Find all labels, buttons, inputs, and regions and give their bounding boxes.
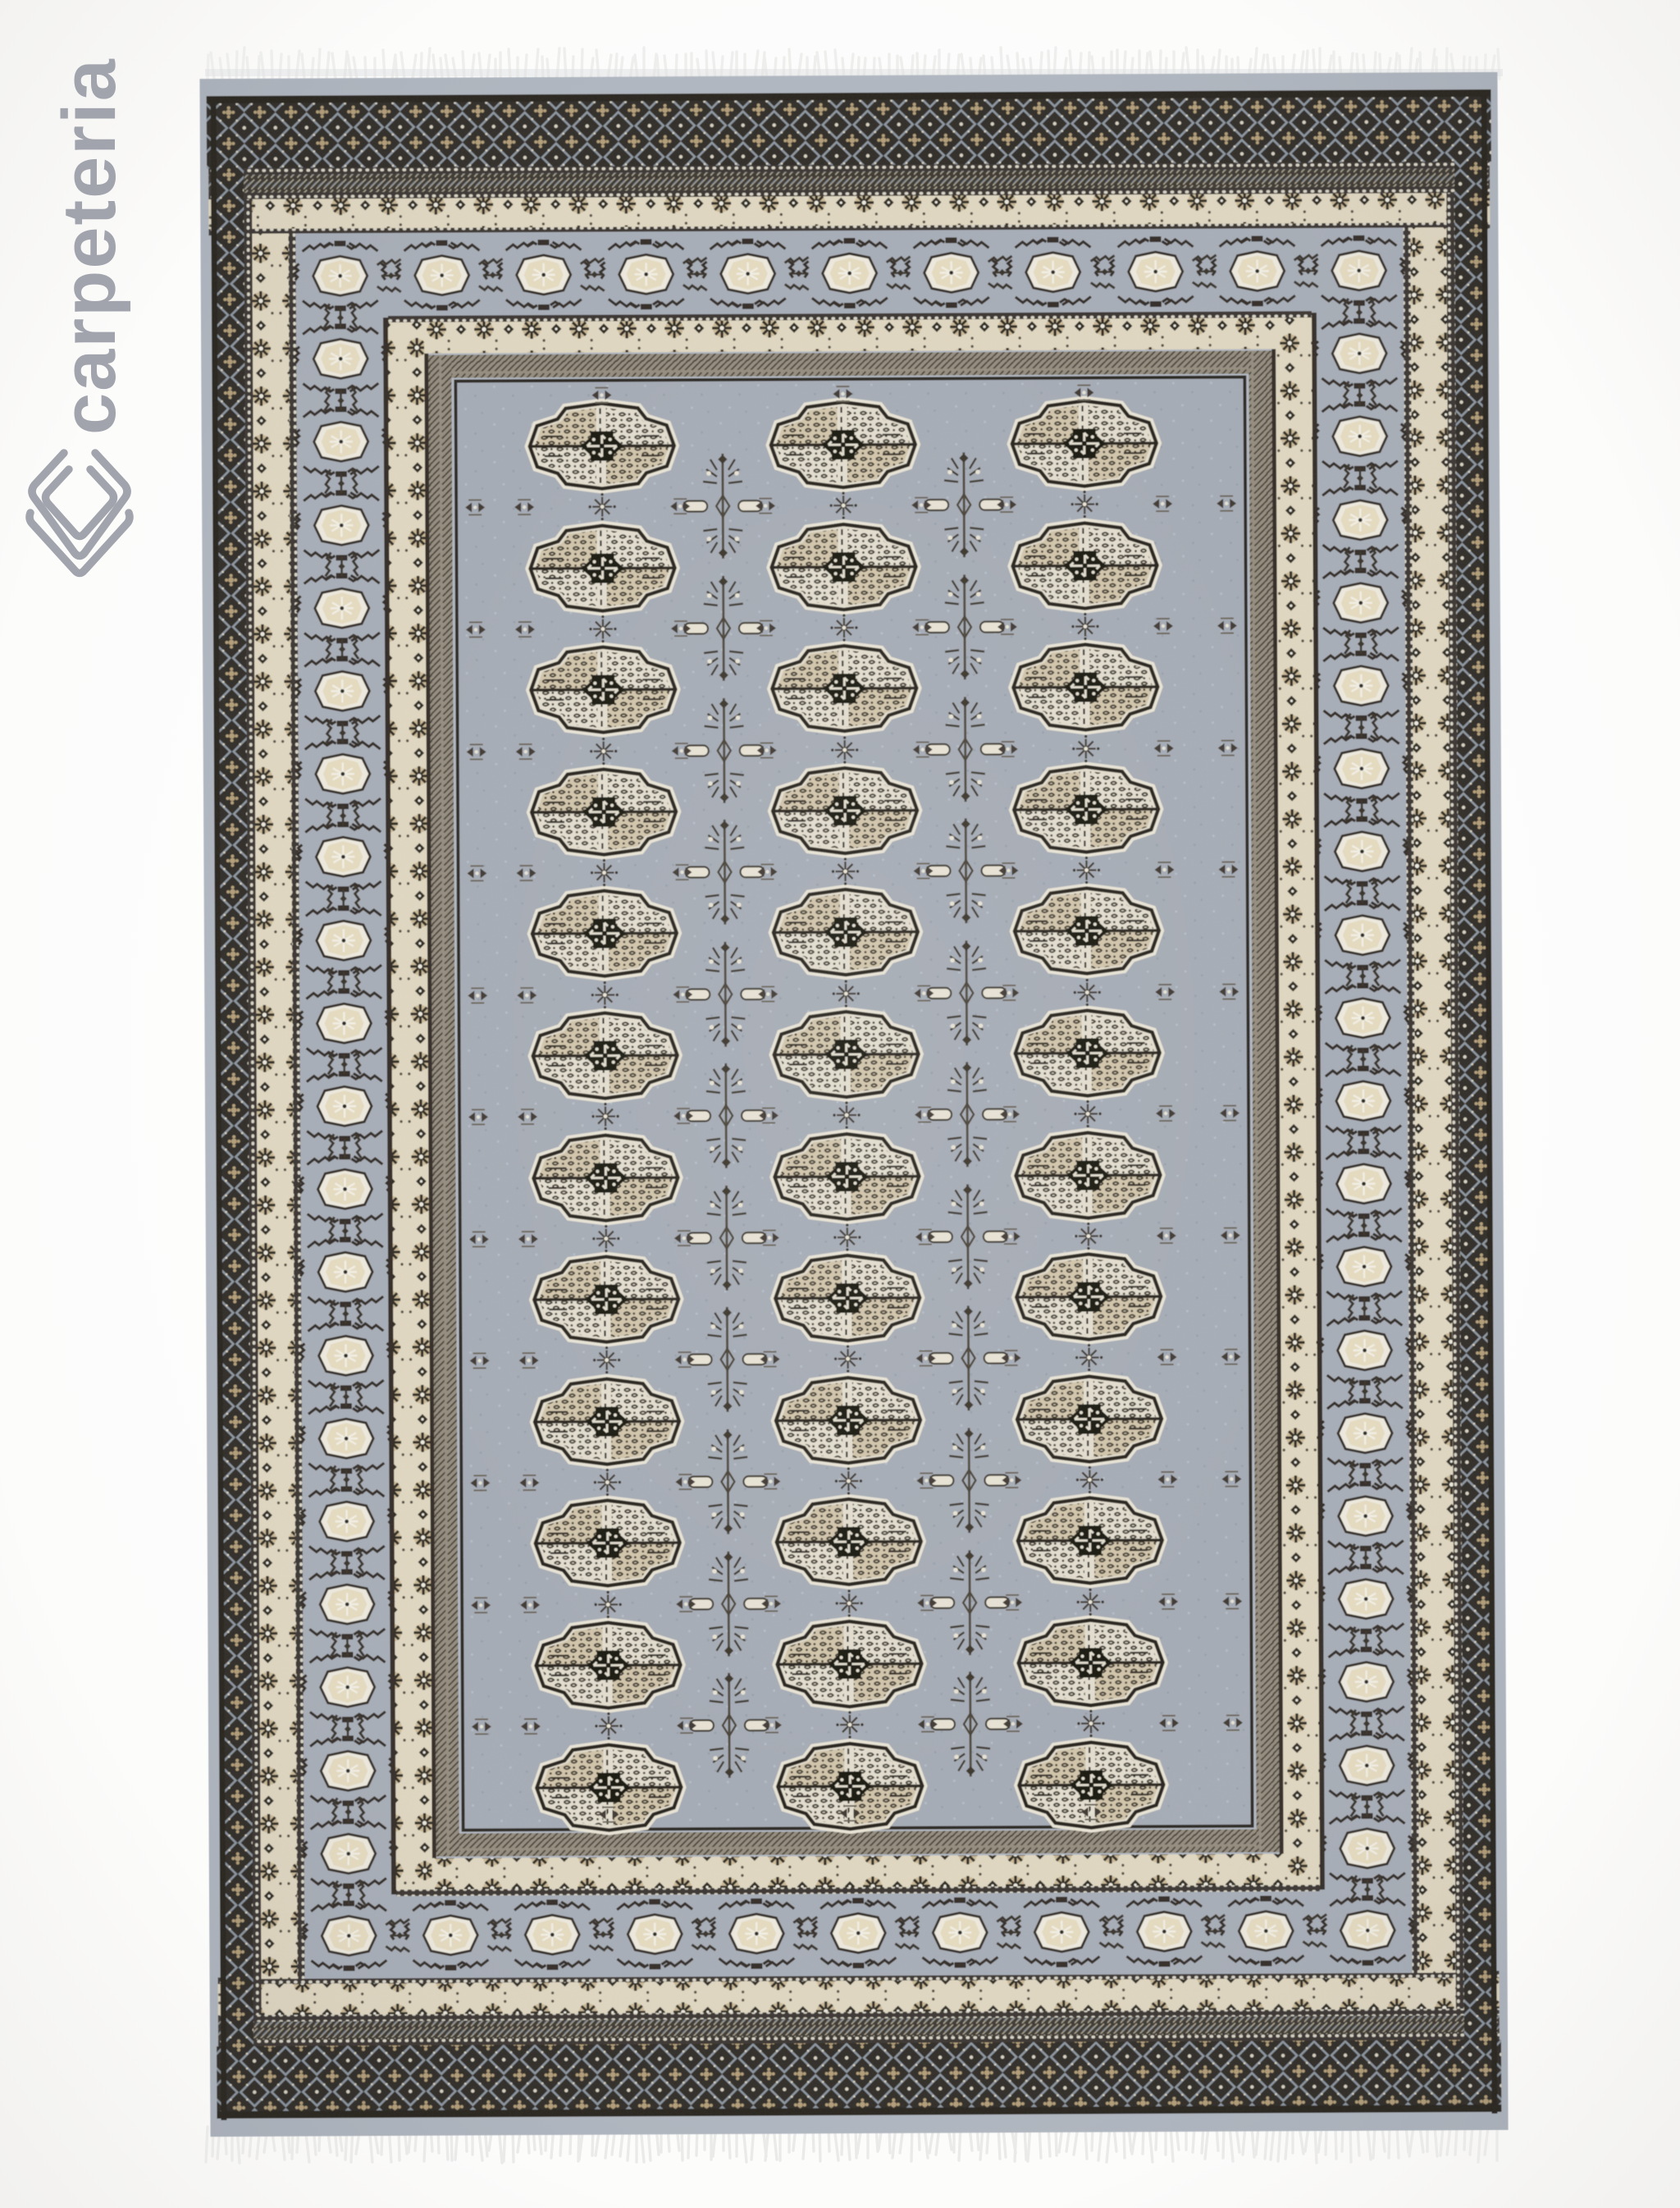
svg-text:carpeteria: carpeteria: [48, 57, 131, 435]
